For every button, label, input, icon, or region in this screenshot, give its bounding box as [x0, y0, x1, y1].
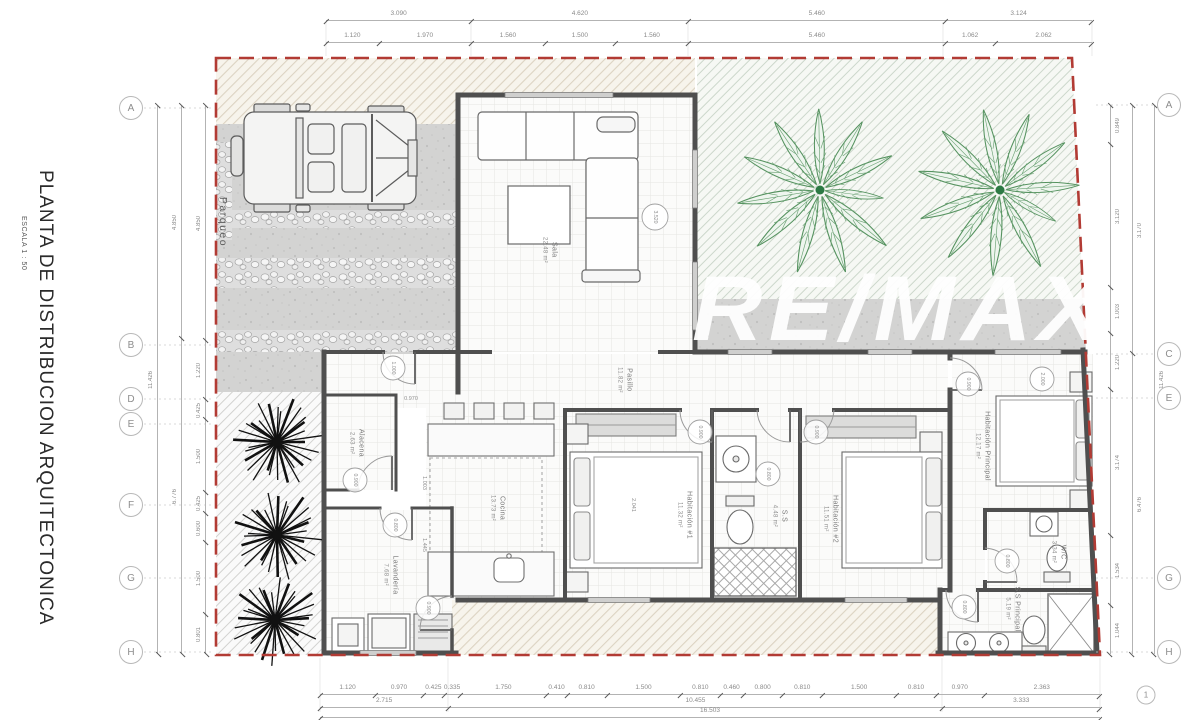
dim-label: 0.460 [723, 684, 739, 694]
grid-bubble-left-f: F [119, 493, 143, 517]
dim-label: 0.800 [754, 684, 770, 694]
room-label-pasillo: Pasillo 11.82 m² [615, 367, 634, 393]
dim-label: 6.776 [172, 489, 178, 504]
dim-label: 3.174 [1115, 455, 1121, 470]
interior-dim: 2.041 [630, 498, 636, 512]
room-label-ss: S.S 4.48 m² [770, 505, 789, 527]
door-tag: 0.900 [813, 426, 819, 439]
door-tag: 0.800 [1004, 555, 1010, 568]
grid-bubble-left-h: H [119, 640, 143, 664]
dim-label: 0.810 [794, 684, 810, 694]
scale-label: ESCALA 1 : 50 [20, 216, 27, 271]
door-tag: 0.900 [697, 426, 703, 439]
grid-bubble-right-c: C [1157, 342, 1181, 366]
grid-bubble-right-h: H [1157, 640, 1181, 664]
room-label-ss-principal: S.S Principal 5.19 m² [1003, 586, 1022, 631]
dim-label: 3.124 [1010, 10, 1026, 20]
dim-label: 0.849 [1115, 118, 1121, 133]
dim-label: 0.410 [548, 684, 564, 694]
room-label-habitacion-2: Habitación #2 11.51 m² [821, 495, 840, 543]
dim-label: 1.750 [495, 684, 511, 694]
dim-label: 5.460 [809, 10, 825, 20]
dim-label: 1.044 [1115, 623, 1121, 638]
dim-label: 1.003 [1115, 304, 1121, 319]
dim-chain-left-inner: 4.850 1.220 0.425 1.500 0.425 0.600 1.50… [192, 106, 206, 654]
grid-bubble-left-e: E [119, 412, 143, 436]
grid-bubble-bottom-1: 1 [1137, 686, 1156, 705]
laundry-icons [332, 614, 452, 652]
dim-label: 1.220 [1115, 355, 1121, 370]
car-icon [231, 104, 417, 212]
dim-label: 0.425 [425, 684, 441, 694]
dim-label: 3.090 [390, 10, 406, 20]
window-tag: 3.520 [652, 211, 658, 224]
dim-label: 6.476 [1137, 497, 1143, 512]
door-tag: 0.800 [392, 519, 398, 532]
grid-bubble-left-b: B [119, 333, 143, 357]
dim-label: 1.062 [962, 32, 978, 42]
dim-label: 1.534 [1115, 563, 1121, 578]
door-tag: 0.900 [965, 378, 971, 391]
dim-label: 5.460 [809, 32, 825, 42]
room-label-parqueo: Parqueo [217, 197, 229, 247]
dim-label: 10.455 [685, 697, 705, 707]
dim-label: 3.170 [1137, 223, 1143, 238]
room-label-sala: Sala 22.48 m² [540, 237, 559, 263]
dim-label: 0.970 [391, 684, 407, 694]
grid-bubble-right-a: A [1157, 93, 1181, 117]
dim-chain-right-mid: 3.170 6.476 [1132, 106, 1146, 654]
dim-label: 1.560 [644, 32, 660, 42]
dim-label: 0.600 [196, 521, 202, 536]
dim-label: 1.970 [417, 32, 433, 42]
dim-label: 0.810 [578, 684, 594, 694]
dim-label: 0.810 [692, 684, 708, 694]
dim-label: 1.500 [196, 571, 202, 586]
room-label-cocina: Cocina 13.73 m² [488, 495, 507, 521]
interior-dim: 0.970 [404, 396, 418, 402]
grid-bubble-left-d: D [119, 387, 143, 411]
dim-label: 16.503 [700, 707, 720, 717]
dim-chain-bottom-inner: 1.120 0.970 0.425 0.335 1.750 0.410 0.81… [320, 682, 1100, 695]
dim-label: 1.220 [196, 363, 202, 378]
dim-label: 4.850 [196, 216, 202, 231]
dim-label: 2.062 [1035, 32, 1051, 42]
interior-dim: 1.003 [421, 476, 427, 490]
dim-label: 1.500 [572, 32, 588, 42]
dim-label: 0.801 [196, 627, 202, 642]
room-label-alacena: Alacena 2.63 m² [347, 429, 366, 457]
grid-bubble-left-a: A [119, 96, 143, 120]
floorplan-page: RE/MAX PLANTA DE DISTRIBUCION ARQUITECTO… [0, 0, 1200, 720]
door-tag: 0.900 [352, 474, 358, 487]
room-label-habitacion-principal: Habitación Principal 12.17 m² [973, 411, 992, 481]
dim-label: 0.970 [952, 684, 968, 694]
dim-chain-top-outer: 3.090 4.620 5.460 3.124 [326, 8, 1092, 21]
dim-label: 1.560 [500, 32, 516, 42]
room-label-lavanderia: Lavandería 7.68 m² [381, 555, 400, 594]
grid-bubble-left-g: G [119, 566, 143, 590]
door-tag: 1.000 [390, 362, 396, 375]
dim-label: 4.850 [172, 215, 178, 230]
dim-label: 0.810 [908, 684, 924, 694]
door-tag: 0.800 [961, 601, 967, 614]
dim-chain-left-mid: 4.850 6.776 [168, 106, 182, 654]
dim-chain-left-outer: 11.426 [144, 106, 158, 654]
watermark: RE/MAX [692, 263, 1127, 355]
room-label-habitacion-1: Habitación #1 11.32 m² [675, 491, 694, 539]
dim-label: 1.500 [635, 684, 651, 694]
dim-label: 2.363 [1034, 684, 1050, 694]
page-title: PLANTA DE DISTRIBUCION ARQUITECTONICA [34, 170, 56, 625]
dim-chain-bottom-outer: 16.503 [320, 707, 1100, 718]
dim-label: 1.500 [851, 684, 867, 694]
grid-bubble-right-g: G [1157, 566, 1181, 590]
room-label-wc: W/C 3.34 m² [1049, 541, 1068, 563]
window-tag: 2.000 [1039, 373, 1045, 386]
dim-chain-right-inner: 0.849 3.120 1.003 1.220 3.174 1.534 1.04… [1110, 106, 1124, 654]
dim-label: 1.500 [196, 449, 202, 464]
dim-label: 3.333 [1013, 697, 1029, 707]
door-tag: 0.800 [765, 468, 771, 481]
dim-label: 1.120 [339, 684, 355, 694]
grid-bubble-right-e: E [1157, 386, 1181, 410]
coffee-table-icon [508, 186, 570, 244]
interior-dim: 1.445 [421, 538, 427, 552]
dim-label: 0.335 [444, 684, 460, 694]
dim-label: 3.120 [1115, 209, 1121, 224]
dim-label: 0.425 [196, 496, 202, 511]
dim-label: 4.620 [572, 10, 588, 20]
dim-chain-top-inner: 1.120 1.970 1.560 1.500 1.560 5.460 1.06… [326, 30, 1092, 43]
dim-label: 0.425 [196, 403, 202, 418]
dim-label: 2.715 [376, 697, 392, 707]
door-tag: 0.900 [425, 602, 431, 615]
dim-label: 11.426 [148, 371, 154, 389]
dim-label: 1.120 [344, 32, 360, 42]
